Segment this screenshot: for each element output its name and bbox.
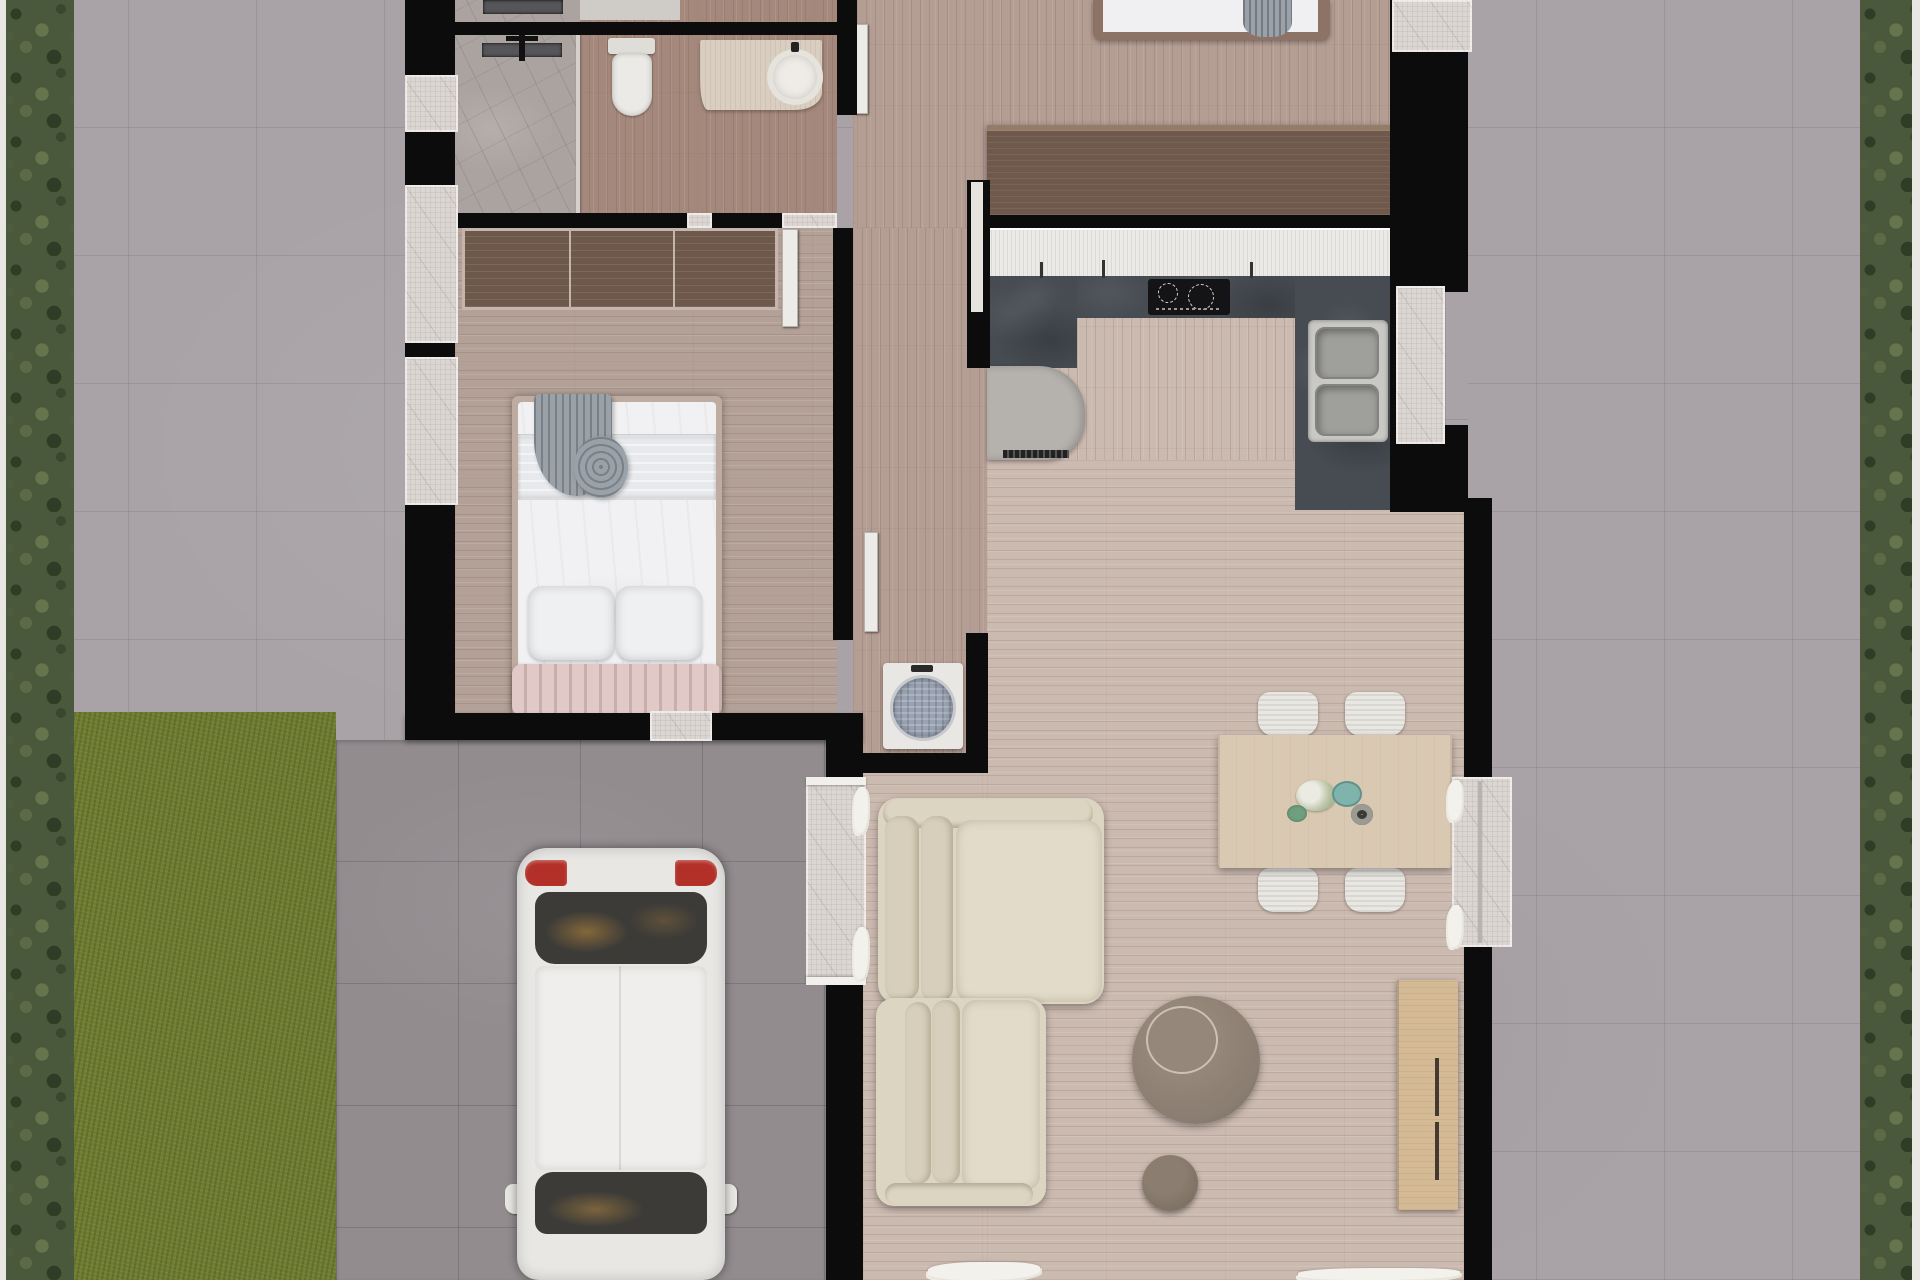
- washer-niche-wall-v: [966, 633, 988, 773]
- fridge-vent-icon: [1003, 450, 1069, 458]
- sideboard-handle-icon: [1435, 1122, 1439, 1180]
- wardrobe-divider: [673, 231, 675, 307]
- bathroom-top-wall: [455, 22, 837, 35]
- bedroom-door-threshold: [782, 213, 837, 228]
- washer-niche-wall-h: [863, 753, 988, 773]
- tv-sideboard: [1397, 980, 1458, 1210]
- bed-left: [512, 396, 722, 717]
- lawn-patch: [64, 712, 336, 1280]
- sofa-large: [878, 798, 1104, 1004]
- car-windshield: [535, 1172, 707, 1234]
- wardrobe-divider: [569, 231, 571, 307]
- induction-hob: [1148, 279, 1230, 315]
- sink-basin-bottom: [1315, 384, 1379, 436]
- fridge: [987, 366, 1085, 460]
- car-taillight-right-icon: [675, 860, 717, 886]
- sofa-armrest: [885, 1183, 1033, 1205]
- pillow-left: [528, 586, 614, 660]
- dining-chair: [1258, 868, 1318, 912]
- dining-chair: [1258, 692, 1318, 736]
- car-taillight-left-icon: [525, 860, 567, 886]
- top-room-counter: [580, 0, 680, 20]
- pillow-right: [616, 586, 702, 660]
- car-body: [517, 848, 725, 1280]
- dining-chair: [1345, 868, 1405, 912]
- sink-basin-top: [1315, 327, 1379, 379]
- long-dresser: [987, 125, 1390, 215]
- bathroom-door-threshold: [687, 213, 712, 228]
- double-sink: [1308, 320, 1388, 442]
- toilet-bowl: [612, 53, 652, 116]
- worktop-tap-icon: [1250, 262, 1253, 278]
- toilet-tank: [608, 38, 655, 54]
- sofa-back-cushion: [885, 816, 919, 1000]
- washer-panel: [911, 665, 933, 672]
- worktop-tap-icon: [1040, 262, 1043, 278]
- west-window-bedroom: [405, 357, 458, 505]
- south-wall: [405, 713, 863, 740]
- entry-curtain-fuzz: [854, 927, 868, 979]
- sofa-back-cushion: [921, 816, 953, 1002]
- porch-frame-top: [806, 777, 866, 785]
- dining-chair: [1345, 692, 1405, 736]
- basin-tap-icon: [791, 42, 799, 52]
- radiator-valve-arm-icon: [506, 36, 538, 41]
- pink-channel-headboard: [512, 664, 722, 716]
- washer-drum-icon: [890, 675, 956, 741]
- bedroom-top-right-window: [1392, 0, 1472, 52]
- coffee-table-ring-icon: [1146, 1006, 1218, 1074]
- right-hedge: [1860, 0, 1912, 1280]
- south-window: [650, 711, 712, 741]
- bedroom-left-door-leaf: [782, 229, 798, 327]
- centerpiece-teal-plate: [1332, 781, 1362, 807]
- bedroom-left-east-wall: [833, 228, 853, 640]
- white-rug: [928, 1262, 1040, 1280]
- sofa-seat-cushion: [956, 820, 1102, 1002]
- kitchen-window: [1396, 286, 1445, 444]
- hob-controls: [1156, 308, 1222, 310]
- kitchen-north-wall: [987, 215, 1390, 228]
- car-roof: [535, 966, 707, 1170]
- bathroom-south-wall: [455, 213, 837, 228]
- vanity-basin: [767, 49, 823, 105]
- centerpiece-green-dish: [1287, 805, 1307, 822]
- west-window-bath: [405, 185, 458, 343]
- hall-living-door-leaf: [864, 532, 878, 632]
- white-rug: [1298, 1268, 1460, 1280]
- sofa-back-cushion: [932, 1000, 960, 1184]
- dining-curtain-fuzz: [1448, 905, 1462, 947]
- shower-glass-screen: [576, 35, 580, 213]
- hob-ring-icon: [1158, 283, 1178, 303]
- kitchen-wall-white-face: [971, 182, 983, 312]
- worktop-tap-icon: [1102, 260, 1105, 278]
- west-window-small: [405, 75, 458, 132]
- sofa-seat-cushion: [962, 1000, 1040, 1190]
- sofa-small: [876, 998, 1046, 1206]
- window-mullion: [1478, 781, 1482, 943]
- dark-counter-left-leg: [987, 276, 1077, 368]
- floor-plan-render: [0, 0, 1920, 1280]
- dining-curtain-fuzz: [1448, 780, 1462, 820]
- grey-throw-curl: [574, 436, 628, 498]
- entry-porch: [806, 777, 866, 985]
- left-hedge: [6, 0, 74, 1280]
- centerpiece-vase: [1351, 804, 1373, 825]
- pouf: [1142, 1155, 1198, 1211]
- bedroom-top-right-west-wall: [837, 0, 857, 115]
- car-rear-window: [535, 892, 707, 964]
- kitchen-white-worktop: [987, 228, 1390, 278]
- east-facade-notch: [1445, 292, 1468, 425]
- entry-curtain-fuzz: [854, 787, 868, 833]
- sofa-back-cushion: [905, 1002, 931, 1184]
- sideboard-handle-icon: [1435, 1058, 1439, 1116]
- grey-blanket: [1243, 0, 1292, 37]
- washing-machine: [883, 663, 963, 749]
- towel-radiator-top: [483, 0, 563, 14]
- white-car: [505, 848, 737, 1280]
- sliding-wardrobe: [462, 228, 778, 310]
- hob-ring-icon: [1188, 284, 1214, 310]
